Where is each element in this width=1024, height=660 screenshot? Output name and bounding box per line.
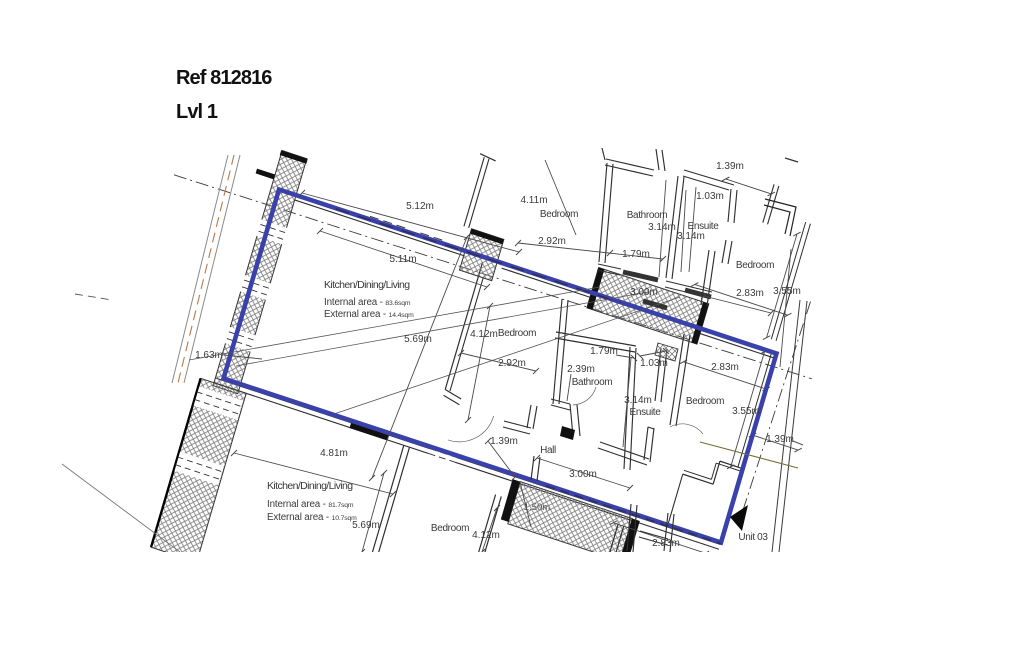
svg-text:1.39m: 1.39m (766, 434, 794, 445)
svg-text:Lvl 1: Lvl 1 (176, 101, 218, 123)
svg-text:1.63m: 1.63m (195, 350, 223, 361)
svg-text:2.92m: 2.92m (498, 358, 526, 369)
svg-text:3.14m: 3.14m (624, 395, 652, 406)
svg-text:3.00m: 3.00m (630, 287, 658, 298)
svg-text:2.83m: 2.83m (711, 362, 739, 373)
svg-text:Unit 03: Unit 03 (738, 532, 768, 543)
svg-text:3.14m: 3.14m (648, 222, 676, 233)
svg-text:Bedroom: Bedroom (431, 523, 469, 534)
svg-text:4.11m: 4.11m (520, 195, 547, 206)
svg-text:2.39m: 2.39m (567, 364, 595, 375)
svg-text:4.81m: 4.81m (320, 448, 348, 459)
svg-text:Kitchen/Dining/Living: Kitchen/Dining/Living (324, 279, 410, 291)
svg-text:1.39m: 1.39m (716, 161, 744, 172)
svg-text:1.79m: 1.79m (590, 346, 618, 357)
svg-text:Bathroom: Bathroom (627, 210, 668, 221)
svg-text:4.12m: 4.12m (472, 530, 500, 541)
svg-text:2.83m: 2.83m (736, 288, 764, 299)
svg-text:5.69m: 5.69m (352, 520, 380, 531)
svg-text:1.39m: 1.39m (490, 436, 518, 447)
svg-text:Bedroom: Bedroom (736, 260, 774, 271)
svg-text:2.83m: 2.83m (652, 538, 680, 549)
svg-text:3.55m: 3.55m (773, 286, 801, 297)
svg-text:2.92m: 2.92m (538, 236, 566, 247)
svg-text:Bedroom: Bedroom (498, 328, 536, 339)
svg-text:5.69m: 5.69m (404, 334, 432, 345)
svg-text:1.79m: 1.79m (622, 249, 650, 260)
svg-text:5.12m: 5.12m (406, 201, 434, 212)
svg-text:Kitchen/Dining/Living: Kitchen/Dining/Living (267, 480, 353, 492)
svg-text:1.03m: 1.03m (640, 358, 668, 369)
svg-text:Bathroom: Bathroom (572, 377, 613, 388)
svg-text:Bedroom: Bedroom (686, 396, 724, 407)
svg-text:3.00m: 3.00m (569, 469, 597, 480)
svg-text:Bedroom: Bedroom (540, 209, 578, 220)
svg-text:5.11m: 5.11m (389, 254, 416, 265)
svg-text:Hall: Hall (540, 445, 556, 456)
svg-text:1.03m: 1.03m (696, 191, 724, 202)
svg-text:3.14m: 3.14m (677, 231, 705, 242)
svg-text:Ensuite: Ensuite (630, 407, 662, 418)
svg-text:3.55m: 3.55m (732, 406, 760, 417)
svg-text:4.12m: 4.12m (470, 329, 498, 340)
svg-text:Ref 812816: Ref 812816 (176, 67, 272, 89)
